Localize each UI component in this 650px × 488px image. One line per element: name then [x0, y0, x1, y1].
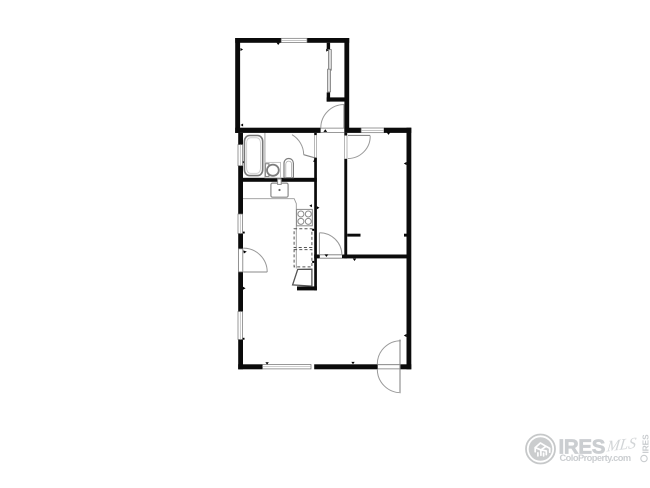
svg-text:ColoProperty.com: ColoProperty.com: [560, 453, 631, 463]
svg-text:IRES: IRES: [642, 434, 650, 454]
